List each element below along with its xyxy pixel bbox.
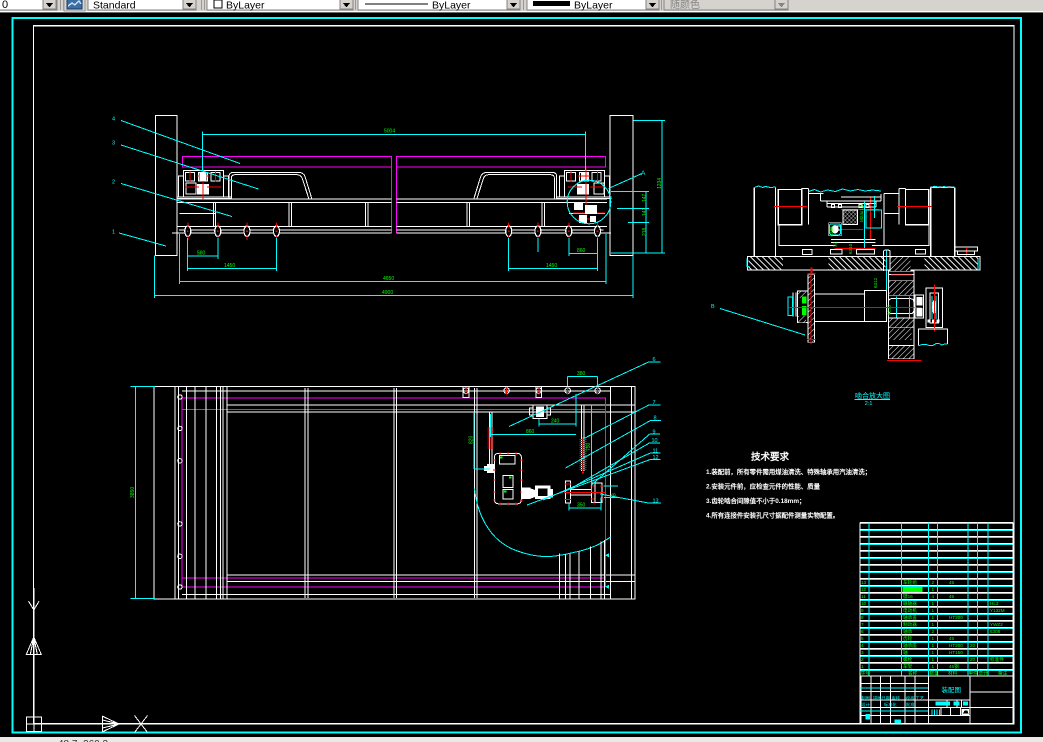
svg-text:45钢: 45钢	[949, 663, 959, 670]
svg-text:45: 45	[949, 636, 955, 641]
svg-text:8: 8	[861, 615, 864, 620]
svg-text:3850: 3850	[130, 487, 136, 498]
svg-text:M24x1.5: M24x1.5	[859, 204, 864, 222]
svg-text:0: 0	[2, 0, 8, 11]
svg-text:11: 11	[653, 448, 659, 454]
svg-text:218: 218	[642, 227, 648, 236]
svg-text:141: 141	[642, 207, 648, 216]
svg-text:2: 2	[932, 580, 935, 585]
svg-text:7: 7	[653, 400, 656, 406]
svg-text:1: 1	[112, 230, 115, 236]
svg-text:4: 4	[861, 643, 864, 648]
svg-text:1: 1	[932, 601, 935, 606]
svg-text:数量: 数量	[930, 670, 940, 677]
svg-text:10: 10	[652, 438, 658, 444]
svg-text:装配图: 装配图	[942, 685, 962, 694]
svg-text:名称: 名称	[908, 670, 918, 677]
svg-text:啮合放大图: 啮合放大图	[855, 391, 890, 400]
svg-text:审核: 审核	[892, 694, 901, 701]
svg-text:860: 860	[526, 429, 535, 435]
svg-text:螺栓: 螺栓	[903, 656, 913, 663]
svg-text:1: 1	[932, 643, 935, 648]
svg-text:轴: 轴	[903, 649, 908, 656]
svg-text:6: 6	[653, 357, 656, 363]
svg-text:3: 3	[112, 141, 115, 147]
svg-text:9: 9	[861, 608, 864, 613]
svg-text:2.安装元件前，应检查元件的性能、质量: 2.安装元件前，应检查元件的性能、质量	[706, 482, 821, 491]
svg-text:制图: 制图	[862, 694, 870, 701]
svg-text:1: 1	[932, 608, 935, 613]
svg-text:1: 1	[932, 650, 935, 655]
svg-text:32: 32	[833, 241, 838, 247]
svg-text:860: 860	[577, 248, 586, 254]
svg-text:20: 20	[970, 657, 976, 662]
svg-text:序号: 序号	[861, 670, 871, 677]
svg-text:3: 3	[861, 650, 864, 655]
svg-text:Standard: Standard	[93, 0, 136, 12]
svg-text:电动机: 电动机	[903, 607, 917, 614]
svg-text:制动器: 制动器	[903, 621, 917, 628]
svg-text:6310: 6310	[848, 243, 853, 254]
svg-text:11: 11	[861, 594, 866, 599]
svg-text:147: 147	[642, 193, 648, 202]
svg-text:Y132M: Y132M	[990, 608, 1005, 613]
svg-text:6: 6	[861, 629, 864, 634]
svg-text:轴承: 轴承	[903, 628, 913, 635]
svg-text:4.所有连接件安装孔尺寸据配件测量实物配置。: 4.所有连接件安装孔尺寸据配件测量实物配置。	[706, 511, 839, 520]
svg-text:1: 1	[861, 664, 864, 669]
svg-text:12: 12	[653, 455, 659, 461]
svg-text:5004: 5004	[384, 129, 395, 135]
svg-text:总计: 总计	[979, 670, 989, 677]
svg-text:6213: 6213	[887, 304, 892, 315]
svg-text:车轮组: 车轮组	[903, 579, 917, 586]
svg-text:YWZ2: YWZ2	[990, 622, 1003, 627]
svg-text:批准: 批准	[906, 701, 914, 708]
svg-text:45: 45	[949, 580, 955, 585]
svg-text:1: 1	[932, 587, 935, 592]
svg-text:轴承盖: 轴承盖	[903, 614, 917, 621]
svg-text:ByLayer: ByLayer	[574, 0, 613, 12]
svg-text:4900: 4900	[382, 290, 393, 296]
svg-text:轴承座: 轴承座	[903, 642, 917, 649]
svg-text:标准化: 标准化	[884, 701, 897, 708]
svg-text:4: 4	[932, 594, 935, 599]
svg-text:6312: 6312	[873, 277, 878, 288]
svg-text:580: 580	[197, 251, 206, 257]
svg-text:750: 750	[586, 442, 592, 451]
svg-text:标准件: 标准件	[990, 656, 1004, 663]
svg-text:随颜色: 随颜色	[670, 0, 700, 11]
svg-text:2:1: 2:1	[865, 401, 873, 407]
svg-text:350: 350	[577, 503, 586, 509]
svg-text:12: 12	[861, 587, 867, 592]
svg-text:13: 13	[653, 498, 659, 504]
svg-text:1: 1	[932, 636, 935, 641]
svg-text:单件: 单件	[969, 670, 979, 677]
svg-text:1234: 1234	[657, 178, 663, 189]
svg-text:HT200: HT200	[949, 643, 963, 648]
svg-text:HT200: HT200	[949, 615, 963, 620]
svg-text:6308: 6308	[829, 226, 834, 237]
svg-text:描图: 描图	[873, 694, 881, 701]
svg-text:380: 380	[577, 371, 586, 377]
svg-text:A: A	[641, 170, 646, 177]
svg-text:2: 2	[861, 657, 864, 662]
svg-text:1: 1	[932, 622, 935, 627]
svg-text:9: 9	[653, 429, 656, 435]
svg-text:4650: 4650	[383, 276, 394, 282]
svg-text:联轴器: 联轴器	[903, 600, 917, 607]
svg-text:ByLayer: ByLayer	[432, 0, 471, 12]
svg-text:工艺: 工艺	[916, 695, 924, 700]
svg-text:10: 10	[861, 601, 867, 606]
svg-text:2: 2	[932, 629, 935, 634]
svg-text:HL3: HL3	[990, 601, 999, 606]
svg-text:20: 20	[970, 643, 976, 648]
svg-text:齿轮: 齿轮	[903, 635, 913, 642]
svg-text:备注: 备注	[998, 670, 1008, 677]
svg-text:6308: 6308	[990, 629, 1001, 634]
svg-text:1450: 1450	[224, 263, 235, 269]
svg-text:45: 45	[949, 594, 955, 599]
svg-text:3.齿轮啮合间隙值不小于0.18mm；: 3.齿轮啮合间隙值不小于0.18mm；	[706, 496, 805, 505]
svg-text:B: B	[711, 304, 715, 310]
svg-text:13: 13	[861, 580, 867, 585]
svg-text:技术要求: 技术要求	[751, 451, 790, 463]
svg-text:8: 8	[654, 416, 657, 422]
svg-text:7: 7	[861, 622, 864, 627]
svg-text:键16: 键16	[903, 593, 913, 600]
svg-text:1: 1	[932, 615, 935, 620]
svg-text:820: 820	[468, 435, 474, 444]
svg-text:车架: 车架	[903, 663, 913, 670]
svg-text:1.装配前，所有零件需用煤油清洗、特殊轴承用汽油清洗；: 1.装配前，所有零件需用煤油清洗、特殊轴承用汽油清洗；	[706, 467, 871, 476]
svg-text:240: 240	[551, 418, 560, 424]
svg-text:1450: 1450	[546, 263, 557, 269]
svg-text:ByLayer: ByLayer	[226, 0, 265, 12]
svg-text:1: 1	[932, 664, 935, 669]
svg-text:设计: 设计	[862, 701, 870, 708]
svg-text:校核: 校核	[906, 694, 915, 701]
svg-text:1: 1	[932, 657, 935, 662]
svg-text:HT150: HT150	[949, 650, 963, 655]
svg-text:4: 4	[112, 117, 115, 123]
svg-text:5: 5	[861, 636, 864, 641]
svg-text:2: 2	[112, 180, 115, 186]
svg-text:材料: 材料	[948, 670, 958, 677]
